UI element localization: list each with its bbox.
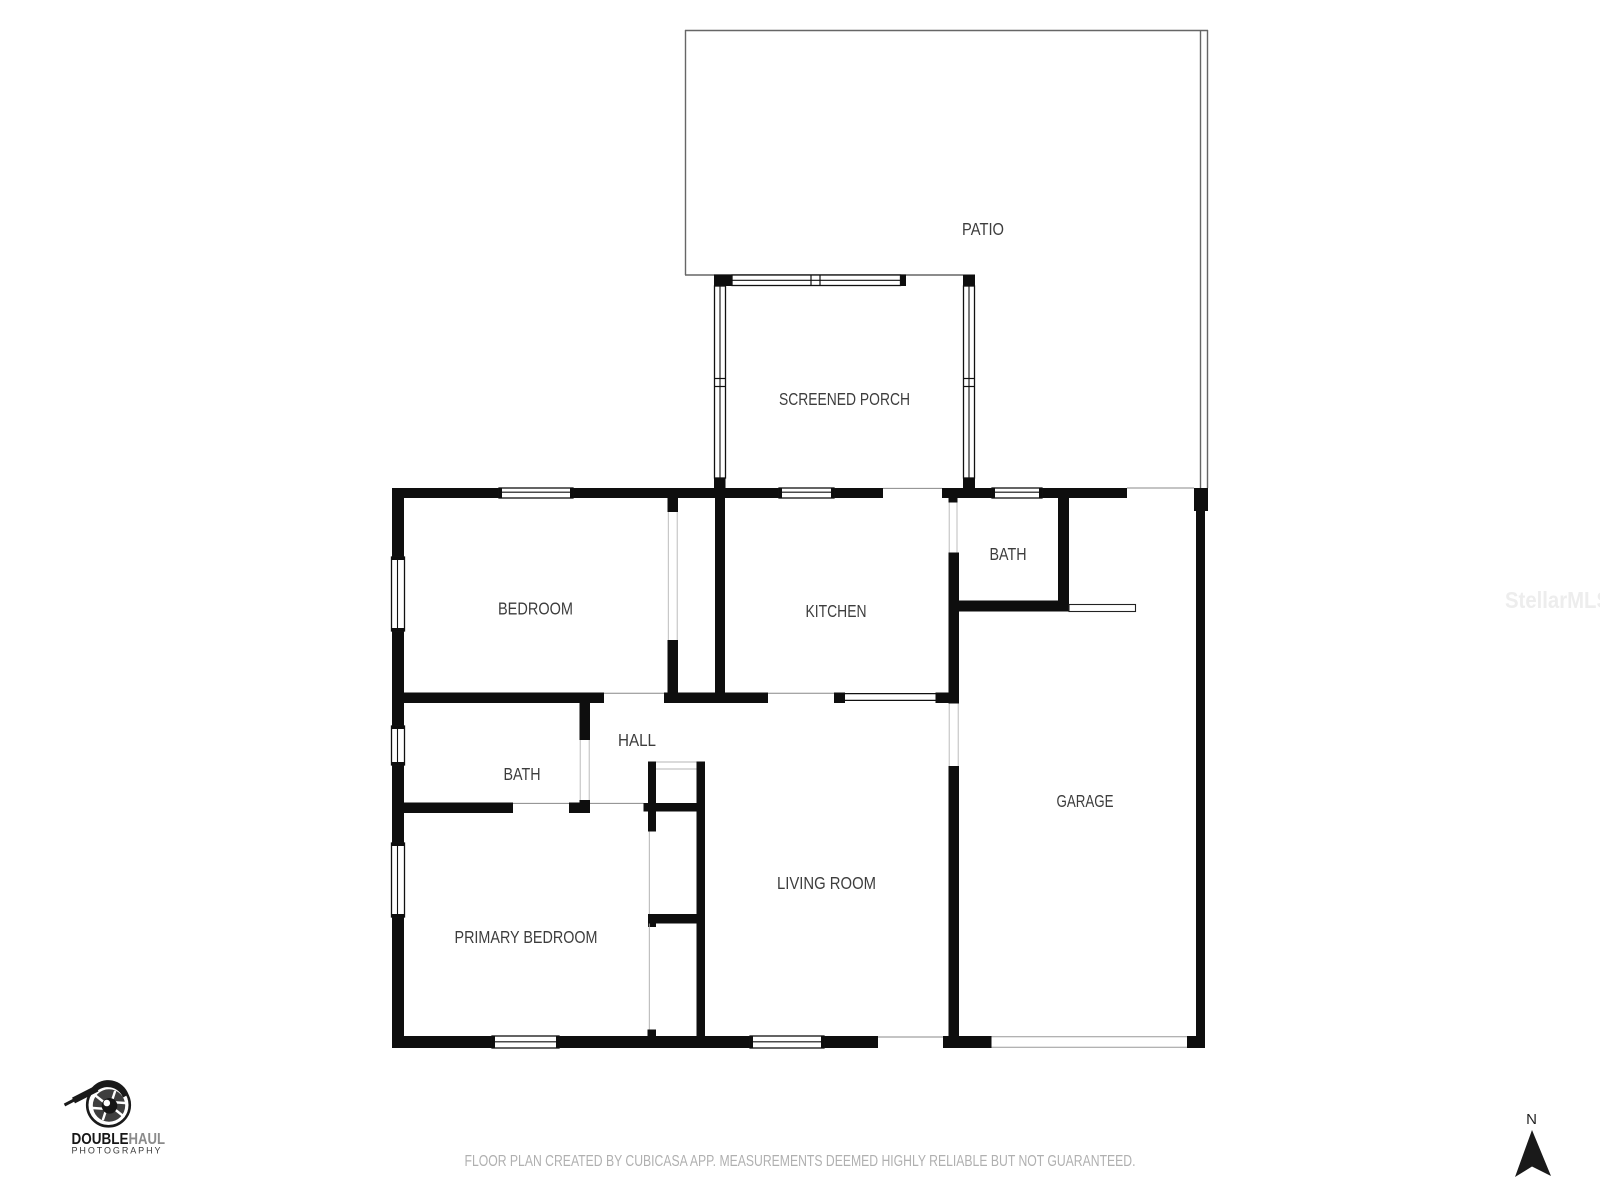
svg-text:BATH: BATH (990, 544, 1027, 564)
svg-text:KITCHEN: KITCHEN (806, 601, 867, 621)
svg-text:SCREENED PORCH: SCREENED PORCH (779, 389, 910, 409)
svg-text:N: N (1526, 1111, 1537, 1128)
svg-text:HALL: HALL (618, 730, 656, 750)
svg-text:GARAGE: GARAGE (1057, 791, 1114, 811)
svg-text:LIVING ROOM: LIVING ROOM (777, 873, 876, 893)
svg-text:PRIMARY BEDROOM: PRIMARY BEDROOM (455, 927, 598, 947)
svg-text:BATH: BATH (504, 764, 541, 784)
svg-text:PHOTOGRAPHY: PHOTOGRAPHY (72, 1146, 161, 1156)
svg-text:StellarMLS: StellarMLS (1505, 587, 1600, 613)
svg-text:FLOOR PLAN CREATED BY CUBICASA: FLOOR PLAN CREATED BY CUBICASA APP. MEAS… (465, 1153, 1136, 1170)
svg-text:PATIO: PATIO (962, 219, 1004, 239)
svg-text:BEDROOM: BEDROOM (498, 599, 573, 619)
